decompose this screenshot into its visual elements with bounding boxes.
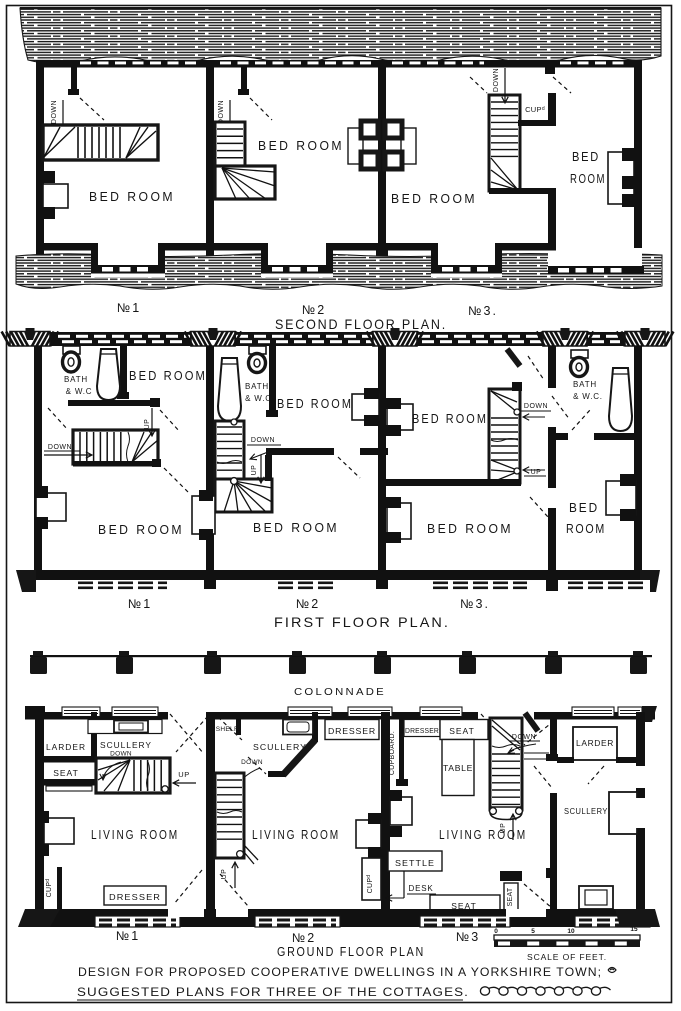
svg-text:№3: №3 (456, 930, 480, 944)
svg-text:& W.C: & W.C (66, 387, 93, 396)
svg-text:LIVING ROOM: LIVING ROOM (439, 827, 527, 842)
svg-text:№1: №1 (116, 929, 140, 943)
svg-text:DOWN: DOWN (512, 734, 536, 741)
svg-text:№2: №2 (292, 931, 316, 945)
svg-text:LIVING ROOM: LIVING ROOM (91, 827, 179, 842)
svg-text:BATH: BATH (64, 375, 88, 384)
svg-text:SCULLERY: SCULLERY (564, 807, 608, 816)
svg-text:0: 0 (494, 928, 498, 935)
svg-text:№2: №2 (302, 303, 326, 317)
svg-text:ROOM: ROOM (566, 522, 606, 536)
svg-text:5: 5 (531, 928, 535, 935)
svg-text:& W.C.: & W.C. (573, 392, 603, 401)
svg-text:DRESSER: DRESSER (328, 726, 376, 736)
svg-text:ROOM: ROOM (570, 172, 606, 186)
svg-text:DESIGN FOR PROPOSED COOPERA: DESIGN FOR PROPOSED COOPERATIVE DWELLING… (78, 965, 602, 979)
svg-text:COLONNADE: COLONNADE (294, 687, 386, 698)
svg-text:SEAT: SEAT (449, 726, 475, 736)
svg-text:BED ROOM: BED ROOM (277, 397, 353, 411)
svg-text:BATH: BATH (245, 382, 269, 391)
svg-text:LARDER: LARDER (576, 739, 614, 748)
svg-text:DOWN: DOWN (493, 68, 500, 92)
svg-text:№1: №1 (117, 301, 141, 315)
svg-text:BED ROOM: BED ROOM (412, 412, 488, 426)
svg-text:BED ROOM: BED ROOM (427, 521, 513, 536)
svg-text:TABLE: TABLE (443, 764, 473, 773)
svg-text:DRESSER: DRESSER (405, 728, 439, 735)
svg-text:DRESSER: DRESSER (109, 892, 161, 902)
svg-text:UP: UP (251, 465, 258, 476)
svg-text:BED ROOM: BED ROOM (258, 138, 344, 153)
svg-text:LARDER: LARDER (46, 742, 86, 752)
svg-text:DOWN: DOWN (251, 437, 275, 444)
svg-text:10: 10 (567, 928, 575, 935)
svg-text:UP: UP (178, 770, 189, 779)
svg-text:DOWN: DOWN (51, 100, 58, 124)
svg-text:SEAT: SEAT (53, 768, 79, 778)
svg-text:SECOND FLOOR PLAN.: SECOND FLOOR PLAN. (275, 316, 447, 332)
svg-text:CUPBOARD.: CUPBOARD. (389, 731, 396, 775)
svg-text:BED ROOM: BED ROOM (129, 369, 207, 383)
svg-text:LIVING ROOM: LIVING ROOM (252, 827, 340, 842)
svg-text:BATH: BATH (573, 380, 597, 389)
svg-text:SCALE OF FEET.: SCALE OF FEET. (527, 953, 607, 962)
svg-text:SEAT: SEAT (507, 887, 514, 906)
svg-text:BED: BED (572, 150, 600, 164)
svg-text:DOWN: DOWN (48, 444, 72, 451)
svg-text:SHELF: SHELF (216, 726, 238, 733)
svg-text:BED ROOM: BED ROOM (391, 191, 477, 206)
svg-text:DOWN: DOWN (241, 759, 263, 766)
svg-text:FIRST FLOOR PLAN.: FIRST FLOOR PLAN. (274, 614, 450, 630)
svg-text:DOWN: DOWN (218, 100, 225, 124)
svg-text:BED ROOM: BED ROOM (89, 189, 175, 204)
svg-text:DOWN: DOWN (524, 403, 548, 410)
svg-text:SUGGESTED PLANS FOR THREE: SUGGESTED PLANS FOR THREE OF THE COTTAGE… (77, 985, 469, 999)
svg-text:BED: BED (569, 501, 599, 515)
svg-text:№2: №2 (296, 597, 320, 611)
svg-text:BED ROOM: BED ROOM (253, 520, 339, 535)
svg-text:SCULLERY: SCULLERY (100, 740, 152, 750)
svg-text:№1: №1 (128, 597, 152, 611)
svg-text:SCULLERY: SCULLERY (253, 742, 307, 752)
svg-text:SETTLE: SETTLE (395, 858, 435, 868)
svg-text:DESK: DESK (409, 884, 434, 893)
svg-text:UP: UP (144, 419, 151, 430)
svg-text:BED ROOM: BED ROOM (98, 522, 184, 537)
svg-text:№3.: №3. (460, 597, 490, 611)
svg-text:GROUND FLOOR PLAN: GROUND FLOOR PLAN (277, 945, 425, 959)
svg-text:15: 15 (630, 926, 638, 933)
svg-text:№3.: №3. (468, 304, 498, 318)
svg-text:UP: UP (221, 869, 228, 880)
